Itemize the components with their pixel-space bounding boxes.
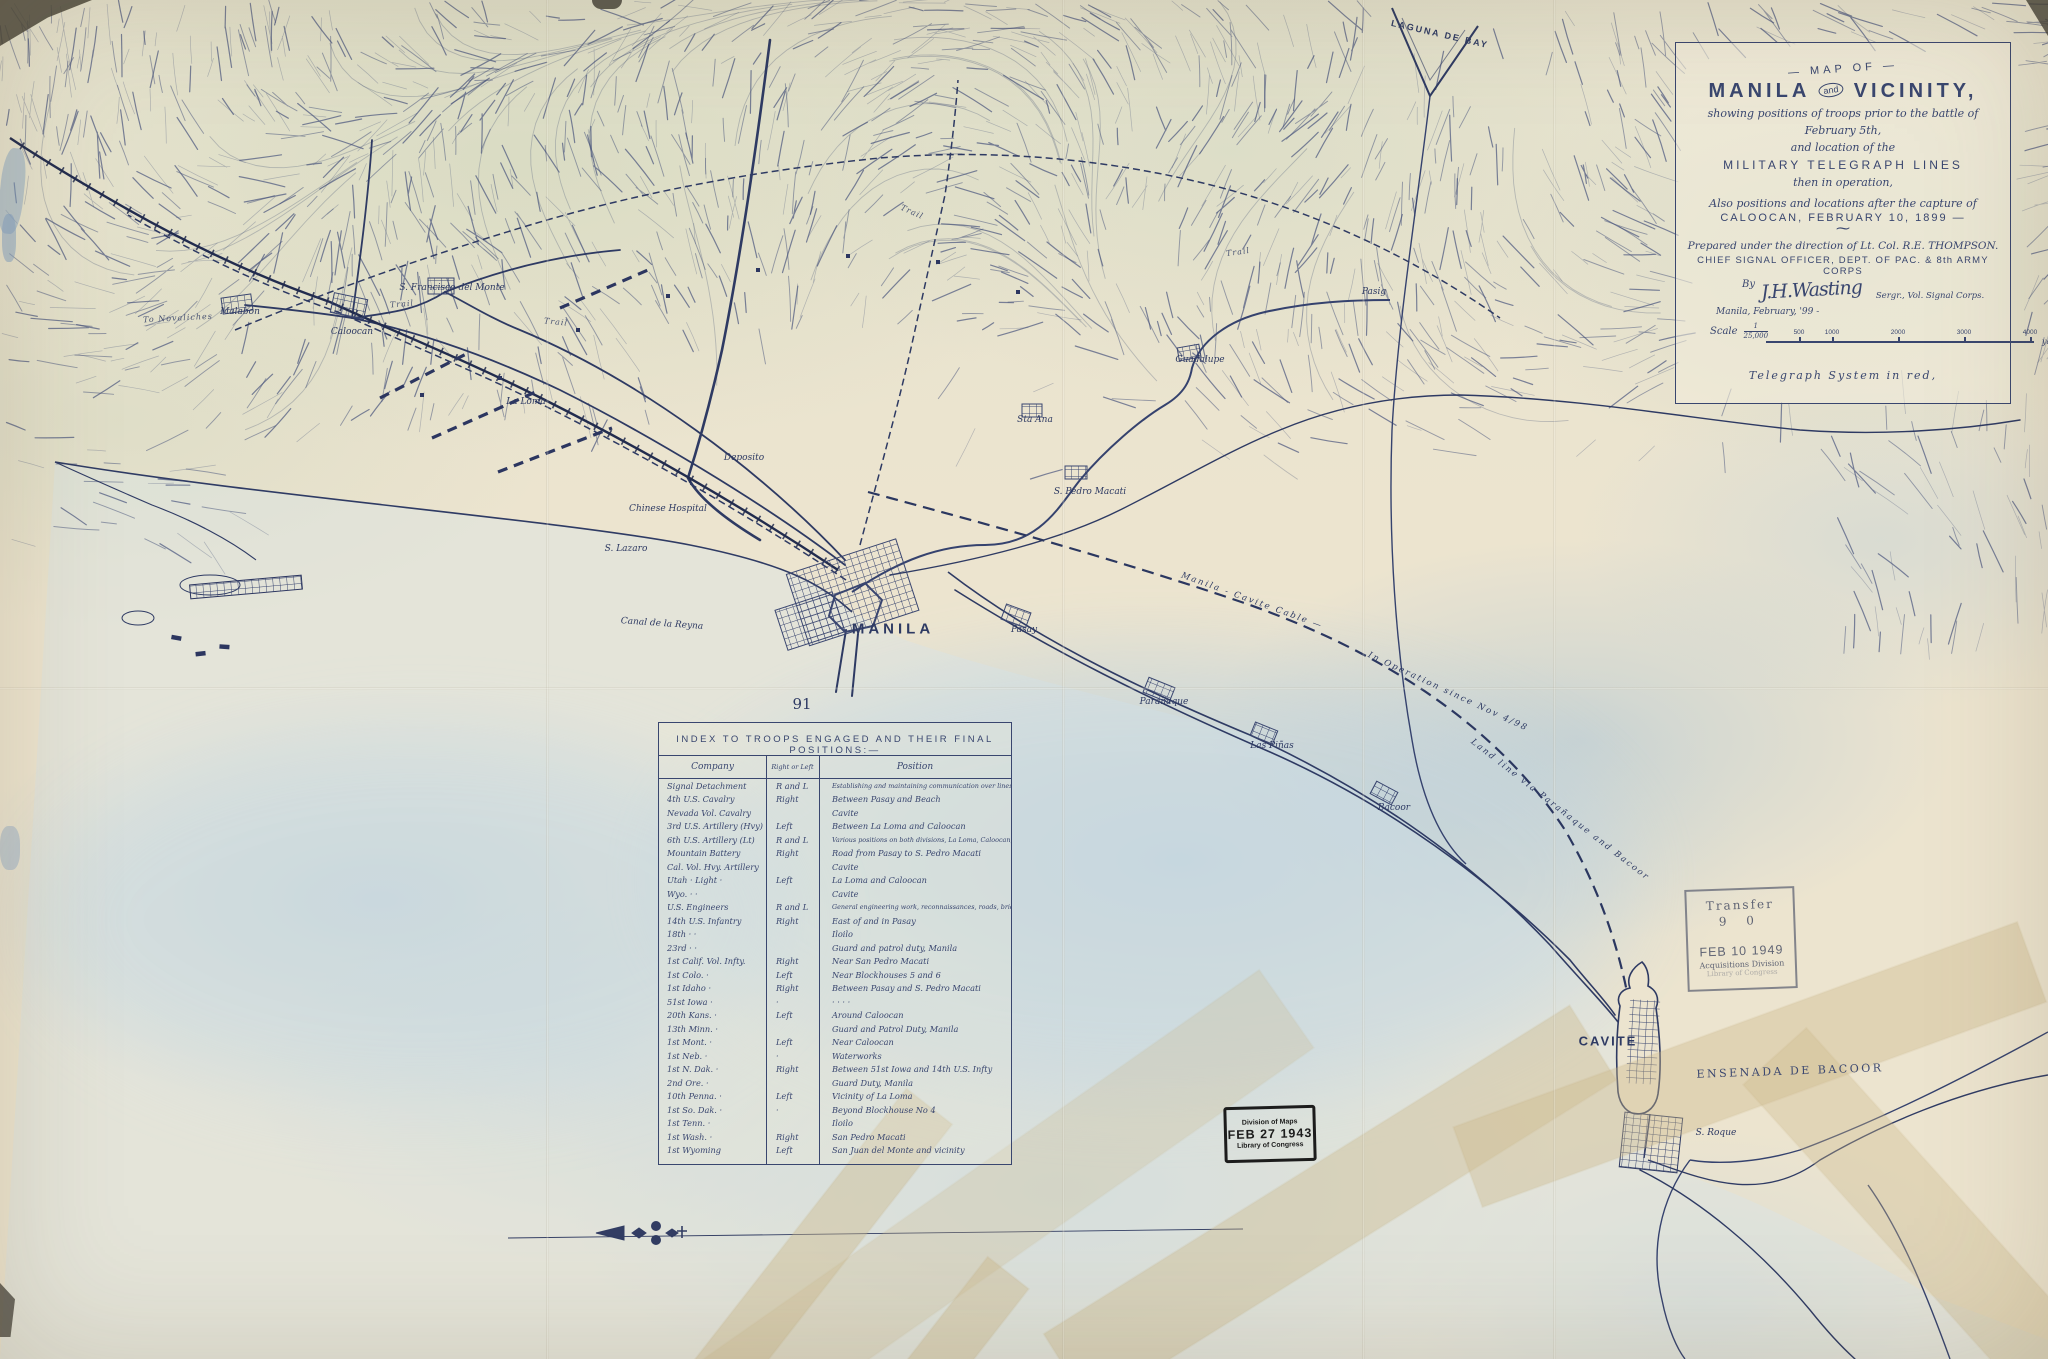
cell-company: 1st Colo. ·	[659, 970, 770, 980]
scale-tickmark	[1799, 337, 1801, 343]
map-label: Pasay	[1011, 625, 1037, 635]
cell-position: Near San Pedro Macati	[826, 956, 1011, 966]
cell-position: San Pedro Macati	[826, 1132, 1011, 1142]
cell-company: Signal Detachment	[659, 781, 770, 791]
scale-tick-label: 3000	[1957, 329, 1971, 336]
cell-position: Near Blockhouses 5 and 6	[826, 970, 1011, 980]
cell-position: Beyond Blockhouse No 4	[826, 1105, 1011, 1115]
cell-position: Vicinity of La Loma	[826, 1091, 1011, 1101]
index-table-row: 1st Mont. ·LeftNear Caloocan	[659, 1036, 1011, 1050]
scale-tickmark	[1898, 337, 1900, 343]
index-table-row: 4th U.S. CavalryRightBetween Pasay and B…	[659, 793, 1011, 807]
map-label: 91	[792, 695, 811, 713]
scale-bar: 5001000200030004000 yards	[1766, 341, 2034, 343]
map-label: Guadalupe	[1175, 355, 1224, 365]
scale-tick-label: 1000	[1825, 329, 1839, 336]
cell-side: Right	[770, 848, 826, 858]
title-sub3: and location of the	[1676, 141, 2010, 154]
map-label: Malabon	[220, 307, 260, 317]
cell-position: Cavite	[826, 808, 1011, 818]
title-prepared: Prepared under the direction of Lt. Col.…	[1676, 240, 2010, 252]
map-sheet: MANILACAVITEENSENADA DE BACOORLAGUNA DE …	[0, 0, 2048, 1359]
map-label: S. Lazaro	[605, 544, 648, 554]
map-label: CAVITE	[1579, 1034, 1638, 1049]
index-table-row: 2nd Ore. ·Guard Duty, Manila	[659, 1076, 1011, 1090]
cell-side: ·	[770, 997, 826, 1007]
library-of-congress-stamp: Division of Maps FEB 27 1943 Library of …	[1223, 1105, 1316, 1163]
cell-side: R and L	[770, 781, 826, 791]
transfer-number: 9 0	[1687, 912, 1793, 930]
cell-position: Iloilo	[826, 1118, 1011, 1128]
index-table-row: 10th Penna. ·LeftVicinity of La Loma	[659, 1090, 1011, 1104]
map-label: Bacoor	[1378, 803, 1410, 813]
index-table-header: Company Right or Left Position	[659, 755, 1011, 779]
index-table-row: Nevada Vol. CavalryCavite	[659, 806, 1011, 820]
index-table-row: Mountain BatteryRightRoad from Pasay to …	[659, 847, 1011, 861]
index-table-row: 18th · ·Iloilo	[659, 928, 1011, 942]
map-label: La Loma	[506, 397, 546, 407]
index-table-title: INDEX TO TROOPS ENGAGED AND THEIR FINAL …	[659, 734, 1011, 756]
index-table-rows: Signal DetachmentR and LEstablishing and…	[659, 779, 1011, 1162]
index-table-row: Utah · Light ·LeftLa Loma and Caloocan	[659, 874, 1011, 888]
index-table-row: 1st Colo. ·LeftNear Blockhouses 5 and 6	[659, 968, 1011, 982]
index-table-row: 13th Minn. ·Guard and Patrol Duty, Manil…	[659, 1022, 1011, 1036]
cell-company: 6th U.S. Artillery (Lt)	[659, 835, 770, 845]
cell-position: Guard and Patrol Duty, Manila	[826, 1024, 1011, 1034]
col-position: Position	[819, 762, 1011, 772]
map-label: Las Piñas	[1250, 741, 1294, 751]
scale-tick-label: 4000	[2023, 329, 2037, 336]
map-label: S. Francisco del Monte	[399, 283, 504, 293]
index-table-row: 1st N. Dak. ·RightBetween 51st Iowa and …	[659, 1063, 1011, 1077]
cell-side: Right	[770, 794, 826, 804]
title-sub1: showing positions of troops prior to the…	[1676, 107, 2010, 120]
cell-position: Iloilo	[826, 929, 1011, 939]
map-label: MANILA	[852, 621, 934, 638]
index-table-row: 51st Iowa ··· · · ·	[659, 995, 1011, 1009]
scale-tickmark	[1964, 337, 1966, 343]
map-label: S. Roque	[1696, 1128, 1737, 1138]
cell-position: Between Pasay and S. Pedro Macati	[826, 983, 1011, 993]
cell-position: San Juan del Monte and vicinity	[826, 1145, 1011, 1155]
edge-nick	[592, 0, 622, 9]
index-table-row: 6th U.S. Artillery (Lt)R and LVarious po…	[659, 833, 1011, 847]
cell-position: Around Caloocan	[826, 1010, 1011, 1020]
transfer-date: FEB 10 1949	[1688, 942, 1794, 960]
title-vicinity: VICINITY,	[1854, 80, 1978, 102]
title-and-badge: and	[1818, 81, 1845, 98]
cell-side: ·	[770, 1105, 826, 1115]
cell-position: East of and in Pasay	[826, 916, 1011, 926]
place-date: Manila, February, '99 -	[1716, 307, 2010, 317]
title-sub2: February 5th,	[1676, 124, 2010, 137]
scale-tick-label: 500	[1794, 329, 1805, 336]
cell-position: Establishing and maintaining communicati…	[826, 782, 1011, 790]
index-table-row: 1st Wash. ·RightSan Pedro Macati	[659, 1130, 1011, 1144]
by-label: By	[1742, 279, 1755, 290]
cell-position: General engineering work, reconnaissance…	[826, 903, 1011, 911]
title-also1: Also positions and locations after the c…	[1676, 197, 2010, 210]
cell-company: 14th U.S. Infantry	[659, 916, 770, 926]
cell-company: 1st Calif. Vol. Infty.	[659, 956, 770, 966]
scale-unit: yards	[2042, 337, 2048, 346]
col-company: Company	[659, 762, 766, 772]
cell-company: U.S. Engineers	[659, 902, 770, 912]
signature-title: Sergr., Vol. Signal Corps.	[1876, 291, 1984, 301]
cell-position: Road from Pasay to S. Pedro Macati	[826, 848, 1011, 858]
cell-position: Guard Duty, Manila	[826, 1078, 1011, 1088]
cell-position: Between Pasay and Beach	[826, 794, 1011, 804]
cell-position: Cavite	[826, 862, 1011, 872]
scale-tickmark	[1832, 337, 1834, 343]
title-telegraph-lines: MILITARY TELEGRAPH LINES	[1676, 158, 2010, 172]
cell-company: 1st Wyoming	[659, 1145, 770, 1155]
map-label: Chinese Hospital	[629, 504, 707, 514]
cell-side: ·	[770, 1051, 826, 1061]
index-table-row: 1st So. Dak. ··Beyond Blockhouse No 4	[659, 1103, 1011, 1117]
title-block: — MAP OF — MANILA and VICINITY, showing …	[1675, 42, 2011, 404]
map-label: Caloocan	[331, 327, 373, 337]
index-table-row: Signal DetachmentR and LEstablishing and…	[659, 779, 1011, 793]
cell-side: Right	[770, 1064, 826, 1074]
title-sub4: then in operation,	[1676, 176, 2010, 189]
cell-company: 1st N. Dak. ·	[659, 1064, 770, 1074]
cell-company: 13th Minn. ·	[659, 1024, 770, 1034]
map-label: Parañaque	[1140, 697, 1189, 707]
stamp-date: FEB 27 1943	[1227, 1126, 1313, 1142]
map-label: S. Pedro Macati	[1054, 487, 1126, 497]
cell-position: Between La Loma and Caloocan	[826, 821, 1011, 831]
map-title: MANILA and VICINITY,	[1676, 80, 2010, 103]
cell-position: Waterworks	[826, 1051, 1011, 1061]
cell-company: 2nd Ore. ·	[659, 1078, 770, 1088]
cell-side: Right	[770, 916, 826, 926]
index-table-row: 1st Idaho ·RightBetween Pasay and S. Ped…	[659, 982, 1011, 996]
cell-position: Guard and patrol duty, Manila	[826, 943, 1011, 953]
cell-company: 1st So. Dak. ·	[659, 1105, 770, 1115]
telegraph-footnote: Telegraph System in red,	[1676, 369, 2010, 382]
cell-position: Cavite	[826, 889, 1011, 899]
cell-side: Left	[770, 1010, 826, 1020]
cell-company: 51st Iowa ·	[659, 997, 770, 1007]
cell-company: 10th Penna. ·	[659, 1091, 770, 1101]
cell-position: La Loma and Caloocan	[826, 875, 1011, 885]
cell-position: · · · ·	[826, 997, 1011, 1007]
index-table-row: 20th Kans. ·LeftAround Caloocan	[659, 1009, 1011, 1023]
cell-company: 1st Wash. ·	[659, 1132, 770, 1142]
cell-company: 1st Neb. ·	[659, 1051, 770, 1061]
cell-position: Various positions on both divisions, La …	[826, 836, 1011, 844]
map-label: Deposito	[724, 453, 764, 463]
index-table-row: 3rd U.S. Artillery (Hvy)LeftBetween La L…	[659, 820, 1011, 834]
index-table-row: 1st Tenn. ·Iloilo	[659, 1117, 1011, 1131]
cell-company: 1st Idaho ·	[659, 983, 770, 993]
cell-company: Wyo. · ·	[659, 889, 770, 899]
cell-company: 4th U.S. Cavalry	[659, 794, 770, 804]
transfer-label: Transfer	[1687, 896, 1793, 914]
scale-label: Scale	[1710, 326, 1738, 337]
cell-company: Cal. Vol. Hvy. Artillery	[659, 862, 770, 872]
col-side: Right or Left	[766, 763, 819, 771]
signature: J.H.Wasting	[1760, 276, 1862, 303]
cell-side: Left	[770, 1145, 826, 1155]
scale-tickmark	[2030, 337, 2032, 343]
cell-side: Right	[770, 983, 826, 993]
cell-company: 1st Mont. ·	[659, 1037, 770, 1047]
cell-company: 18th · ·	[659, 929, 770, 939]
title-chief: CHIEF SIGNAL OFFICER, DEPT. OF PAC. & 8t…	[1676, 255, 2010, 277]
cell-company: 23rd · ·	[659, 943, 770, 953]
cell-company: Utah · Light ·	[659, 875, 770, 885]
cell-company: 1st Tenn. ·	[659, 1118, 770, 1128]
scale-tick-label: 2000	[1891, 329, 1905, 336]
cell-position: Near Caloocan	[826, 1037, 1011, 1047]
index-table: INDEX TO TROOPS ENGAGED AND THEIR FINAL …	[658, 722, 1012, 1165]
scale-row: Scale125,000 5001000200030004000 yards	[1710, 323, 2010, 357]
cell-position: Between 51st Iowa and 14th U.S. Infty	[826, 1064, 1011, 1074]
map-label: Pasig	[1362, 287, 1386, 297]
cell-side: Left	[770, 1037, 826, 1047]
scale-ratio: 125,000	[1744, 323, 1769, 340]
map-label: Sta Ana	[1017, 415, 1053, 425]
cell-side: Left	[770, 875, 826, 885]
signature-row: By J.H.Wasting Sergr., Vol. Signal Corps…	[1742, 279, 2010, 301]
index-table-row: 1st Calif. Vol. Infty.RightNear San Pedr…	[659, 955, 1011, 969]
cell-side: Left	[770, 821, 826, 831]
cell-side: Left	[770, 970, 826, 980]
index-table-row: Cal. Vol. Hvy. ArtilleryCavite	[659, 860, 1011, 874]
cell-company: Nevada Vol. Cavalry	[659, 808, 770, 818]
cell-side: R and L	[770, 902, 826, 912]
cell-side: Right	[770, 956, 826, 966]
cell-side: Left	[770, 1091, 826, 1101]
stamp-loc-name: Library of Congress	[1227, 1141, 1313, 1150]
index-table-row: 14th U.S. InfantryRightEast of and in Pa…	[659, 914, 1011, 928]
index-table-row: U.S. EngineersR and LGeneral engineering…	[659, 901, 1011, 915]
title-swash: ⁓	[1676, 224, 2010, 234]
index-table-row: Wyo. · ·Cavite	[659, 887, 1011, 901]
cell-company: Mountain Battery	[659, 848, 770, 858]
index-table-row: 1st WyomingLeftSan Juan del Monte and vi…	[659, 1144, 1011, 1158]
cell-company: 3rd U.S. Artillery (Hvy)	[659, 821, 770, 831]
transfer-stamp: Transfer 9 0 FEB 10 1949 Acquisitions Di…	[1684, 886, 1797, 992]
cell-side: R and L	[770, 835, 826, 845]
cell-side: Right	[770, 1132, 826, 1142]
cell-company: 20th Kans. ·	[659, 1010, 770, 1020]
index-table-row: 1st Neb. ··Waterworks	[659, 1049, 1011, 1063]
index-table-row: 23rd · ·Guard and patrol duty, Manila	[659, 941, 1011, 955]
